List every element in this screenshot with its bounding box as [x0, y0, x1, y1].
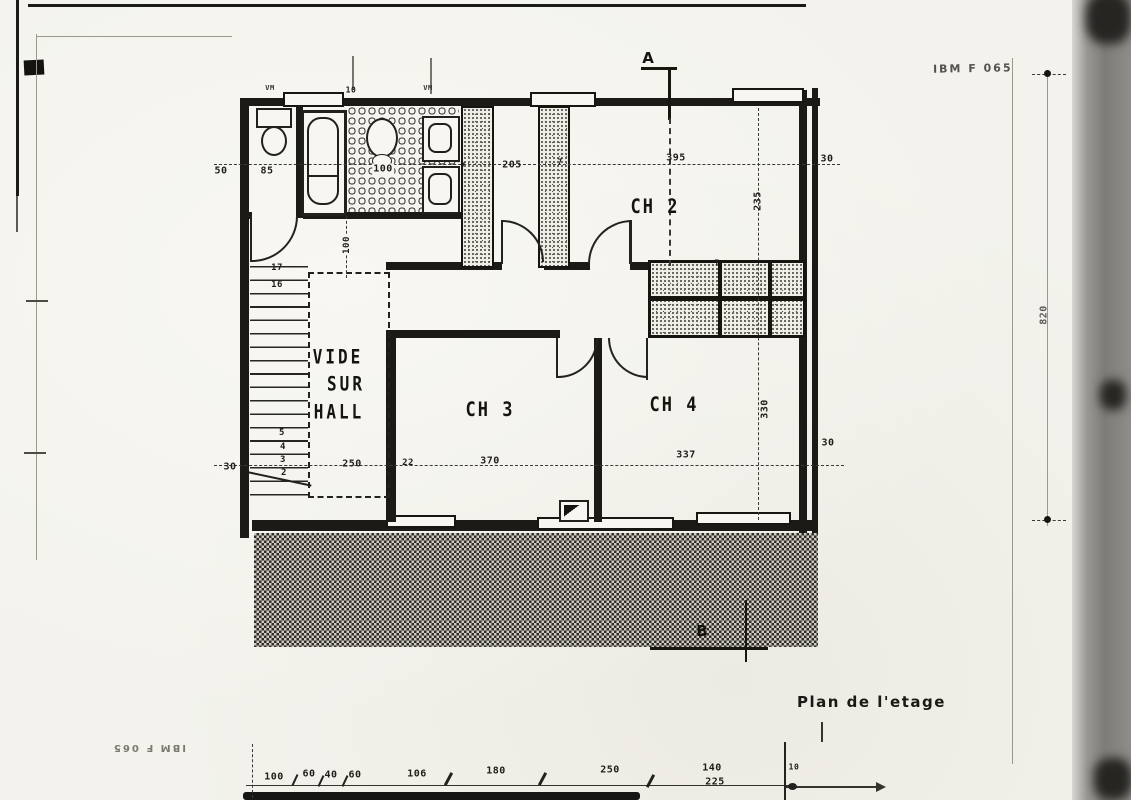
dimension-label: 50 — [214, 166, 227, 177]
dimension-label: 100 — [372, 164, 394, 175]
dimension-label: 820 — [1039, 305, 1050, 325]
dimension-label: 10 — [346, 86, 357, 95]
dimension-label: 30 — [223, 462, 236, 473]
dimension-label: 337 — [676, 450, 696, 461]
dimension-label: 16 — [271, 280, 283, 290]
dimension-annotations: 5085100205773953023533071003025022370337… — [0, 0, 1131, 800]
dimension-label: 100 — [264, 772, 284, 783]
dimension-label: 100 — [342, 235, 352, 255]
dimension-label: 60 — [348, 770, 361, 781]
dimension-label: 5 — [279, 428, 285, 438]
dimension-label: 7 — [714, 259, 719, 268]
scanned-floor-plan-page: A B CH 2 CH 3 CH 4 VIDE SUR HALL Plan de… — [0, 0, 1131, 800]
dimension-label: 30 — [821, 438, 834, 449]
dimension-label: 40 — [324, 770, 337, 781]
dimension-label: 250 — [600, 765, 620, 776]
dimension-label: 395 — [666, 153, 686, 164]
dimension-label: 106 — [407, 769, 427, 780]
dimension-label: 2 — [281, 468, 287, 478]
dimension-label: 225 — [705, 777, 725, 788]
dimension-label: 85 — [260, 166, 273, 177]
dimension-label: 205 — [502, 160, 522, 171]
dimension-label: 4 — [280, 442, 286, 452]
dimension-label: 330 — [760, 399, 771, 419]
dimension-label: 7 — [460, 162, 465, 171]
dimension-label: 250 — [342, 459, 362, 470]
dimension-label: 17 — [271, 263, 283, 273]
dimension-label: 60 — [302, 769, 315, 780]
dimension-label: 3 — [280, 455, 286, 465]
dimension-label: 22 — [402, 458, 414, 468]
dimension-label: 30 — [820, 154, 833, 165]
dimension-label: 370 — [480, 456, 500, 467]
dimension-label: 10 — [789, 763, 800, 772]
dimension-label: 140 — [702, 763, 722, 774]
dimension-label: 7 — [557, 158, 562, 167]
dimension-label: VM — [423, 84, 432, 92]
dimension-label: VM — [265, 84, 274, 92]
dimension-label: 235 — [753, 191, 764, 211]
dimension-label: 180 — [486, 766, 506, 777]
